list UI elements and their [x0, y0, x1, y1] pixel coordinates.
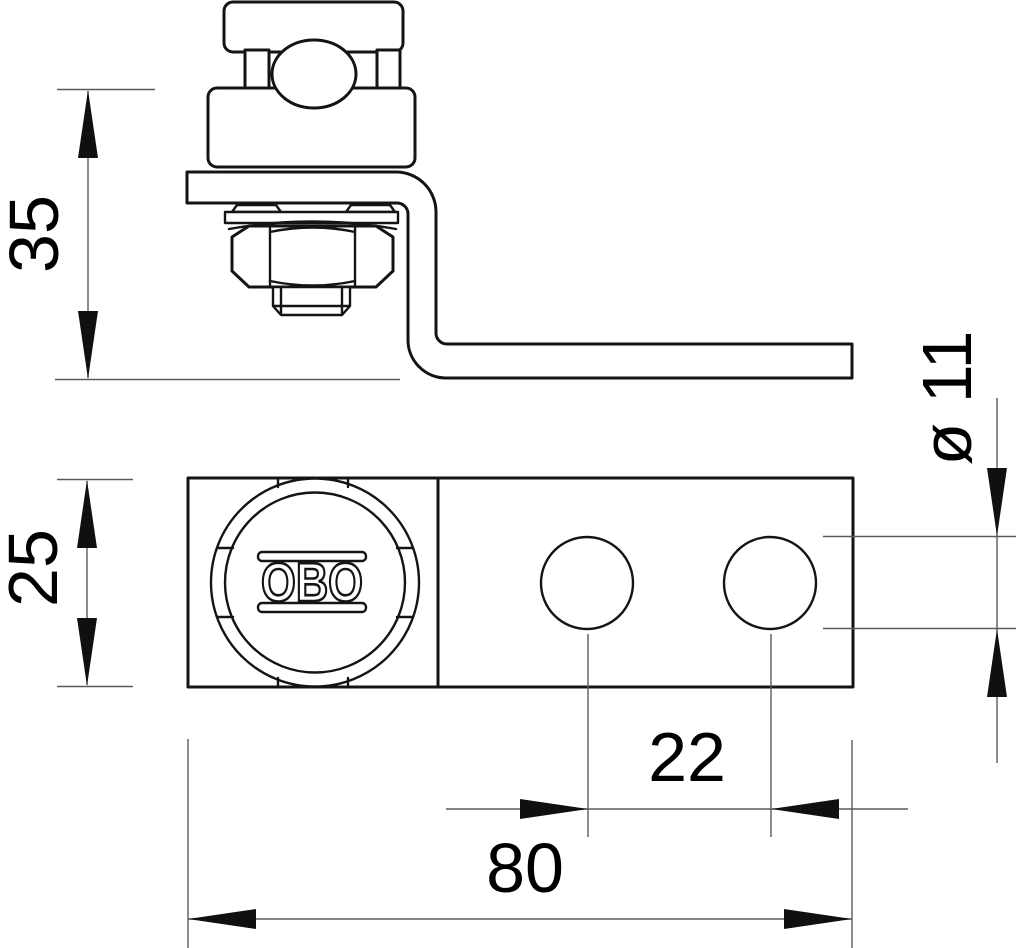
obo-logo-text: OBO — [261, 551, 363, 613]
side-view — [187, 2, 852, 378]
dim-22-label: 22 — [648, 718, 726, 796]
hex-nut — [232, 226, 393, 287]
dim-25-arrow-down — [77, 618, 97, 686]
obo-logo: OBO — [258, 551, 366, 613]
dimension-25: 25 — [0, 480, 133, 687]
hole-left — [541, 537, 633, 629]
hole-right — [724, 537, 816, 629]
dim-11-arrow-down — [987, 468, 1007, 536]
dim-22-arrow-left — [771, 799, 839, 819]
drawing-canvas: OBO 35 25 — [0, 0, 1024, 948]
dimension-80: 80 — [188, 739, 852, 948]
dim-35-arrow-down — [78, 311, 98, 379]
dim-35-arrow-up — [78, 90, 98, 158]
dim-35-label: 35 — [0, 195, 73, 273]
dim-25-label: 25 — [0, 529, 72, 607]
bolt-end — [273, 287, 350, 315]
top-view: OBO — [188, 478, 853, 687]
clamp-post-right — [377, 50, 400, 90]
dim-80-label: 80 — [486, 829, 564, 907]
clamp-post-left — [245, 50, 269, 90]
dim-11-label: ø 11 — [908, 331, 986, 466]
dim-25-arrow-up — [77, 480, 97, 548]
dim-80-arrow-left — [188, 909, 256, 929]
dim-80-arrow-right — [784, 909, 852, 929]
technical-drawing-svg: OBO 35 25 — [0, 0, 1024, 948]
conductor-circle — [272, 40, 356, 108]
dim-22-arrow-right — [520, 799, 588, 819]
dim-11-arrow-up — [987, 629, 1007, 697]
